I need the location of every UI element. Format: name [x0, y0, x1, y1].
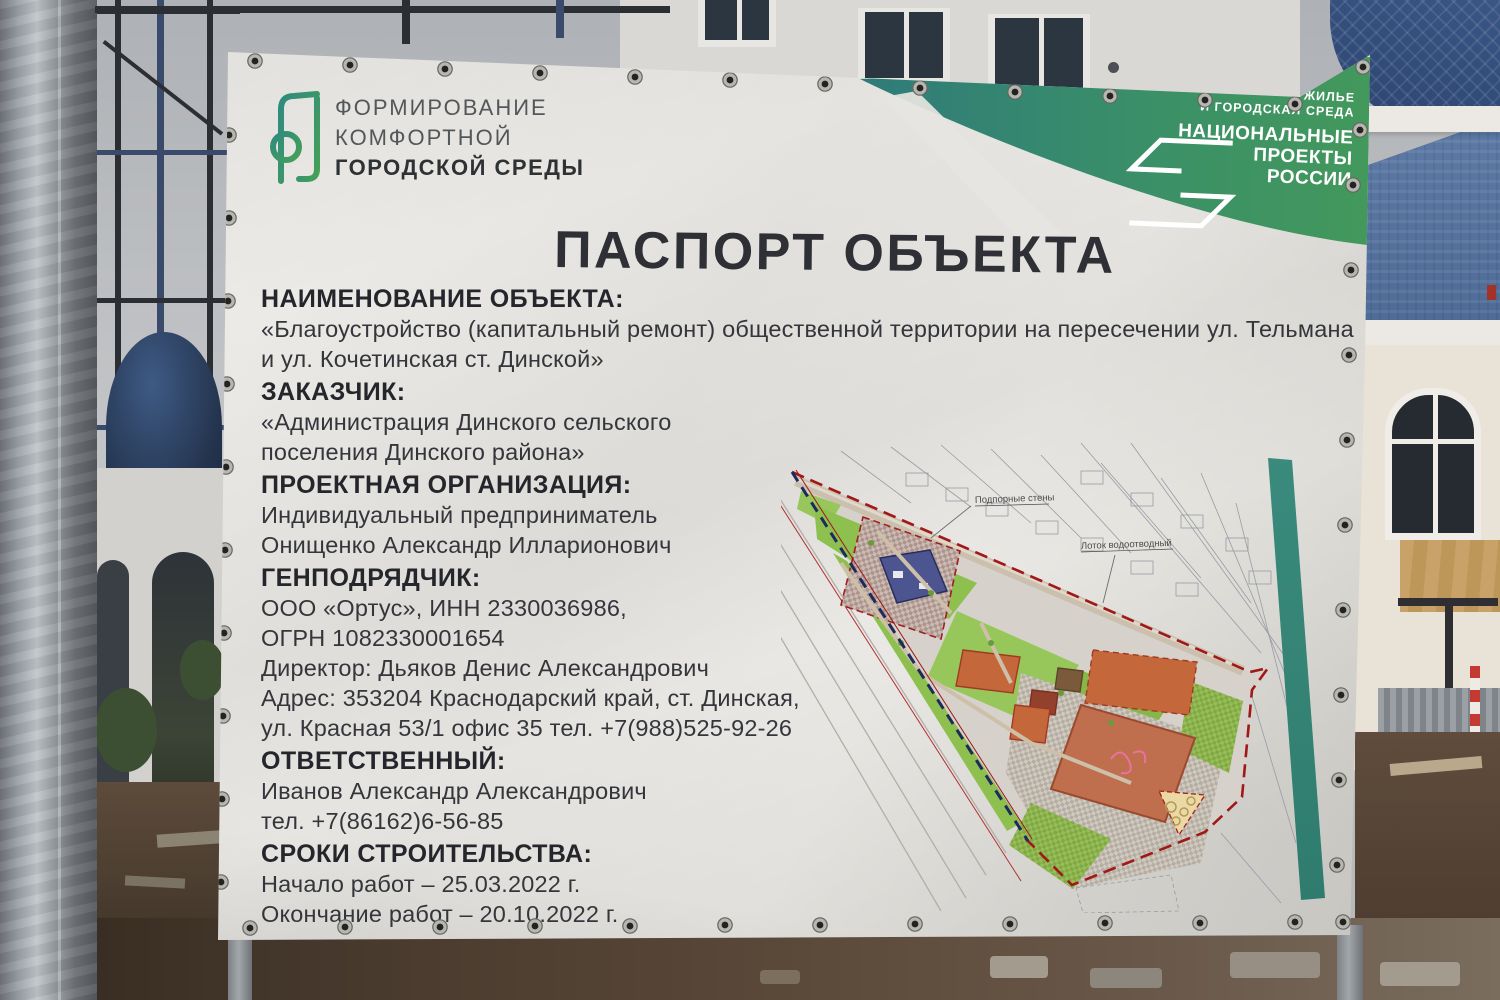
national-projects-badge: ЖИЛЬЕ И ГОРОДСКАЯ СРЕДА НАЦИОНАЛЬНЫЕ ПРО… [1176, 83, 1355, 190]
section-object-name: НАИМЕНОВАНИЕ ОБЪЕКТА: «Благоустройство (… [261, 284, 1361, 374]
window [698, 0, 776, 47]
building-detail [893, 571, 903, 578]
site-plan: Подпорные стены Лоток водоотводный [781, 443, 1303, 913]
foliage [180, 640, 225, 700]
foliage [95, 688, 157, 772]
label-leader [1103, 555, 1115, 603]
banner-frame-post [228, 930, 252, 1000]
fkgs-line: КОМФОРТНОЙ [335, 123, 584, 153]
arched-window [1385, 388, 1481, 540]
section-heading: НАИМЕНОВАНИЕ ОБЪЕКТА: [261, 284, 1361, 314]
section-heading: ЗАКАЗЧИК: [261, 377, 1361, 407]
section-line: «Благоустройство (капитальный ремонт) об… [261, 314, 1361, 344]
site-plan-label-drainage-tray: Лоток водоотводный [1081, 538, 1172, 552]
striped-marker-pole [1470, 666, 1480, 732]
red-wall-fixture [1487, 285, 1496, 300]
scaffold-post [556, 0, 564, 38]
fkgs-logo-text: ФОРМИРОВАНИЕ КОМФОРТНОЙ ГОРОДСКОЙ СРЕДЫ [335, 93, 584, 183]
church-arch-opening [97, 560, 129, 812]
fkgs-logo-icon [265, 85, 323, 185]
corrugated-fence [1378, 688, 1500, 736]
banner-title: ПАСПОРТ ОБЪЕКТА [345, 218, 1326, 288]
metal-post [0, 0, 97, 1000]
scaffold-post [402, 0, 410, 44]
fkgs-line: ГОРОДСКОЙ СРЕДЫ [335, 153, 584, 183]
object-passport-banner: ЖИЛЬЕ И ГОРОДСКАЯ СРЕДА НАЦИОНАЛЬНЫЕ ПРО… [215, 35, 1375, 950]
fkgs-line: ФОРМИРОВАНИЕ [335, 93, 584, 123]
scaffold-top-bar [95, 6, 670, 13]
construction-site-photo: ЖИЛЬЕ И ГОРОДСКАЯ СРЕДА НАЦИОНАЛЬНЫЕ ПРО… [0, 0, 1500, 1000]
banner-frame-post [1337, 925, 1363, 1000]
label-leader [931, 506, 971, 538]
wall-vent [1108, 62, 1119, 73]
section-line: и ул. Кочетинская ст. Динской» [261, 344, 1361, 374]
window [858, 8, 950, 85]
section-line: «Администрация Динского сельского [261, 407, 1361, 437]
